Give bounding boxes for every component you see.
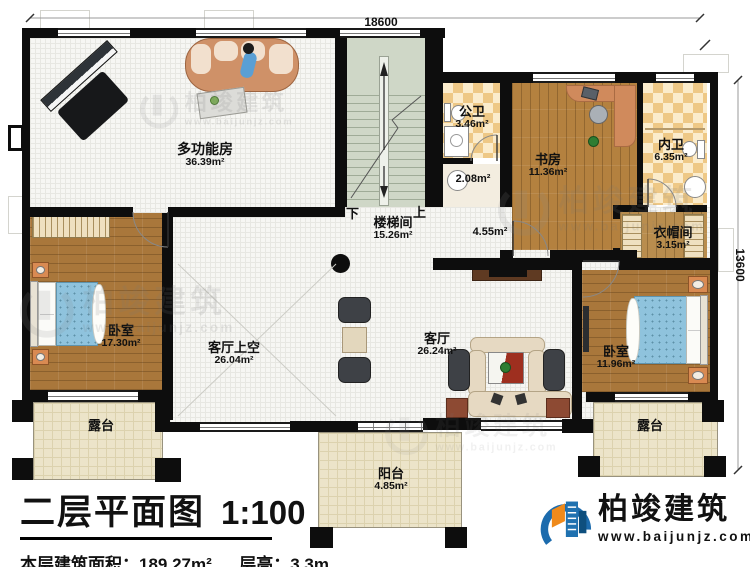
dimension-top: 18600 — [355, 15, 407, 29]
wall — [155, 400, 170, 422]
column — [12, 458, 33, 480]
wardrobe — [684, 214, 704, 259]
plant — [588, 136, 599, 147]
wall — [613, 205, 620, 219]
wall — [637, 83, 643, 205]
bed-mattress — [634, 296, 690, 364]
stair-up-label: 上 — [413, 202, 426, 221]
flue — [8, 125, 24, 151]
wall — [22, 38, 30, 402]
nightstand — [32, 349, 49, 365]
toilet-bowl — [682, 141, 697, 157]
person-head — [243, 43, 254, 54]
wall — [619, 258, 718, 270]
armchair — [543, 349, 565, 391]
column — [702, 400, 724, 422]
toilet-tank — [697, 140, 705, 159]
sink-ensuite — [684, 176, 706, 198]
wall — [423, 418, 481, 430]
washer-drum — [450, 134, 463, 147]
window-sill — [718, 228, 734, 272]
bed-blanket — [626, 298, 640, 362]
toilet-bowl — [451, 105, 466, 121]
wall — [425, 28, 443, 207]
brand-logo-icon — [536, 494, 592, 552]
sofa-side — [468, 350, 486, 396]
wall — [443, 158, 473, 164]
wall — [500, 83, 512, 207]
side-table — [342, 327, 367, 353]
armchair — [448, 349, 470, 391]
armchair — [338, 297, 371, 323]
floor-plan-canvas: 多功能房 36.39m² 楼梯间 15.26m² 4.55m² 公卫 3.46m… — [0, 0, 750, 567]
wall — [155, 422, 200, 432]
floor-height-label: 层高： — [239, 555, 290, 567]
wall — [168, 207, 345, 217]
window-sill — [40, 10, 90, 29]
window — [200, 422, 290, 432]
title-block: 二层平面图 1:100 本层建筑面积：189.27m² 层高：3.3m — [20, 484, 329, 567]
window-sill — [204, 10, 254, 29]
column — [155, 458, 181, 482]
bed-pillows — [38, 282, 56, 346]
dimension-right: 13600 — [733, 237, 747, 293]
column — [704, 456, 726, 477]
wall — [562, 419, 593, 433]
wall — [290, 421, 358, 432]
balcony-door — [358, 421, 423, 432]
plan-area-line: 本层建筑面积：189.27m² 层高：3.3m — [20, 550, 329, 567]
brand-logo: 柏竣建筑 www.baijunjz.com — [536, 494, 750, 552]
nightstand — [32, 262, 49, 278]
wall — [676, 205, 707, 212]
floor-height-value: 3.3m — [290, 555, 329, 567]
tv-wall-mounted — [583, 306, 589, 352]
plan-title: 二层平面图 — [20, 484, 205, 535]
nightstand — [688, 276, 708, 293]
tv — [489, 269, 527, 277]
window — [533, 72, 615, 83]
wall — [22, 207, 133, 217]
toilet-tank — [444, 103, 451, 122]
wardrobe — [32, 214, 110, 238]
floor-terrace-left — [33, 402, 163, 480]
sofa-cushion — [191, 44, 211, 74]
stair-stringer — [379, 56, 389, 206]
window — [481, 420, 562, 431]
brand-website: www.baijunjz.com — [598, 529, 750, 544]
area-label: 本层建筑面积： — [20, 555, 139, 567]
wall — [572, 258, 582, 419]
window-sill — [683, 54, 729, 73]
sofa-cushion — [269, 44, 293, 74]
bed-blanket — [92, 284, 106, 344]
window — [615, 392, 688, 402]
brand-name: 柏竣建筑 — [598, 494, 750, 526]
wall — [620, 205, 648, 212]
window — [340, 28, 420, 38]
wall — [586, 392, 615, 402]
floor-balcony — [318, 432, 462, 528]
floor-terrace-right — [593, 402, 718, 477]
armchair — [338, 357, 371, 383]
sink-lobby — [447, 170, 468, 191]
sofa-cushion — [214, 41, 238, 61]
partition-line — [645, 128, 705, 130]
window — [656, 72, 694, 83]
area-value: 189.27m² — [139, 555, 212, 567]
bed-headboard — [30, 281, 38, 347]
window — [48, 390, 138, 402]
round-column — [331, 254, 350, 273]
bed-headboard — [700, 295, 708, 365]
wall — [710, 83, 718, 403]
side-table — [446, 398, 468, 418]
title-underline — [20, 537, 272, 540]
stair-down-label: 下 — [346, 203, 359, 222]
column — [578, 456, 600, 477]
column — [445, 527, 467, 548]
desk-chair — [589, 105, 608, 124]
flower-vase — [210, 96, 219, 105]
window — [196, 28, 306, 38]
side-table — [546, 398, 570, 418]
plant — [500, 362, 511, 373]
plan-scale: 1:100 — [221, 494, 305, 532]
column — [12, 400, 33, 422]
desk — [614, 85, 636, 147]
wall — [335, 38, 347, 207]
wall — [162, 213, 173, 420]
window — [58, 28, 130, 38]
wall — [433, 258, 572, 270]
nightstand — [688, 367, 708, 384]
